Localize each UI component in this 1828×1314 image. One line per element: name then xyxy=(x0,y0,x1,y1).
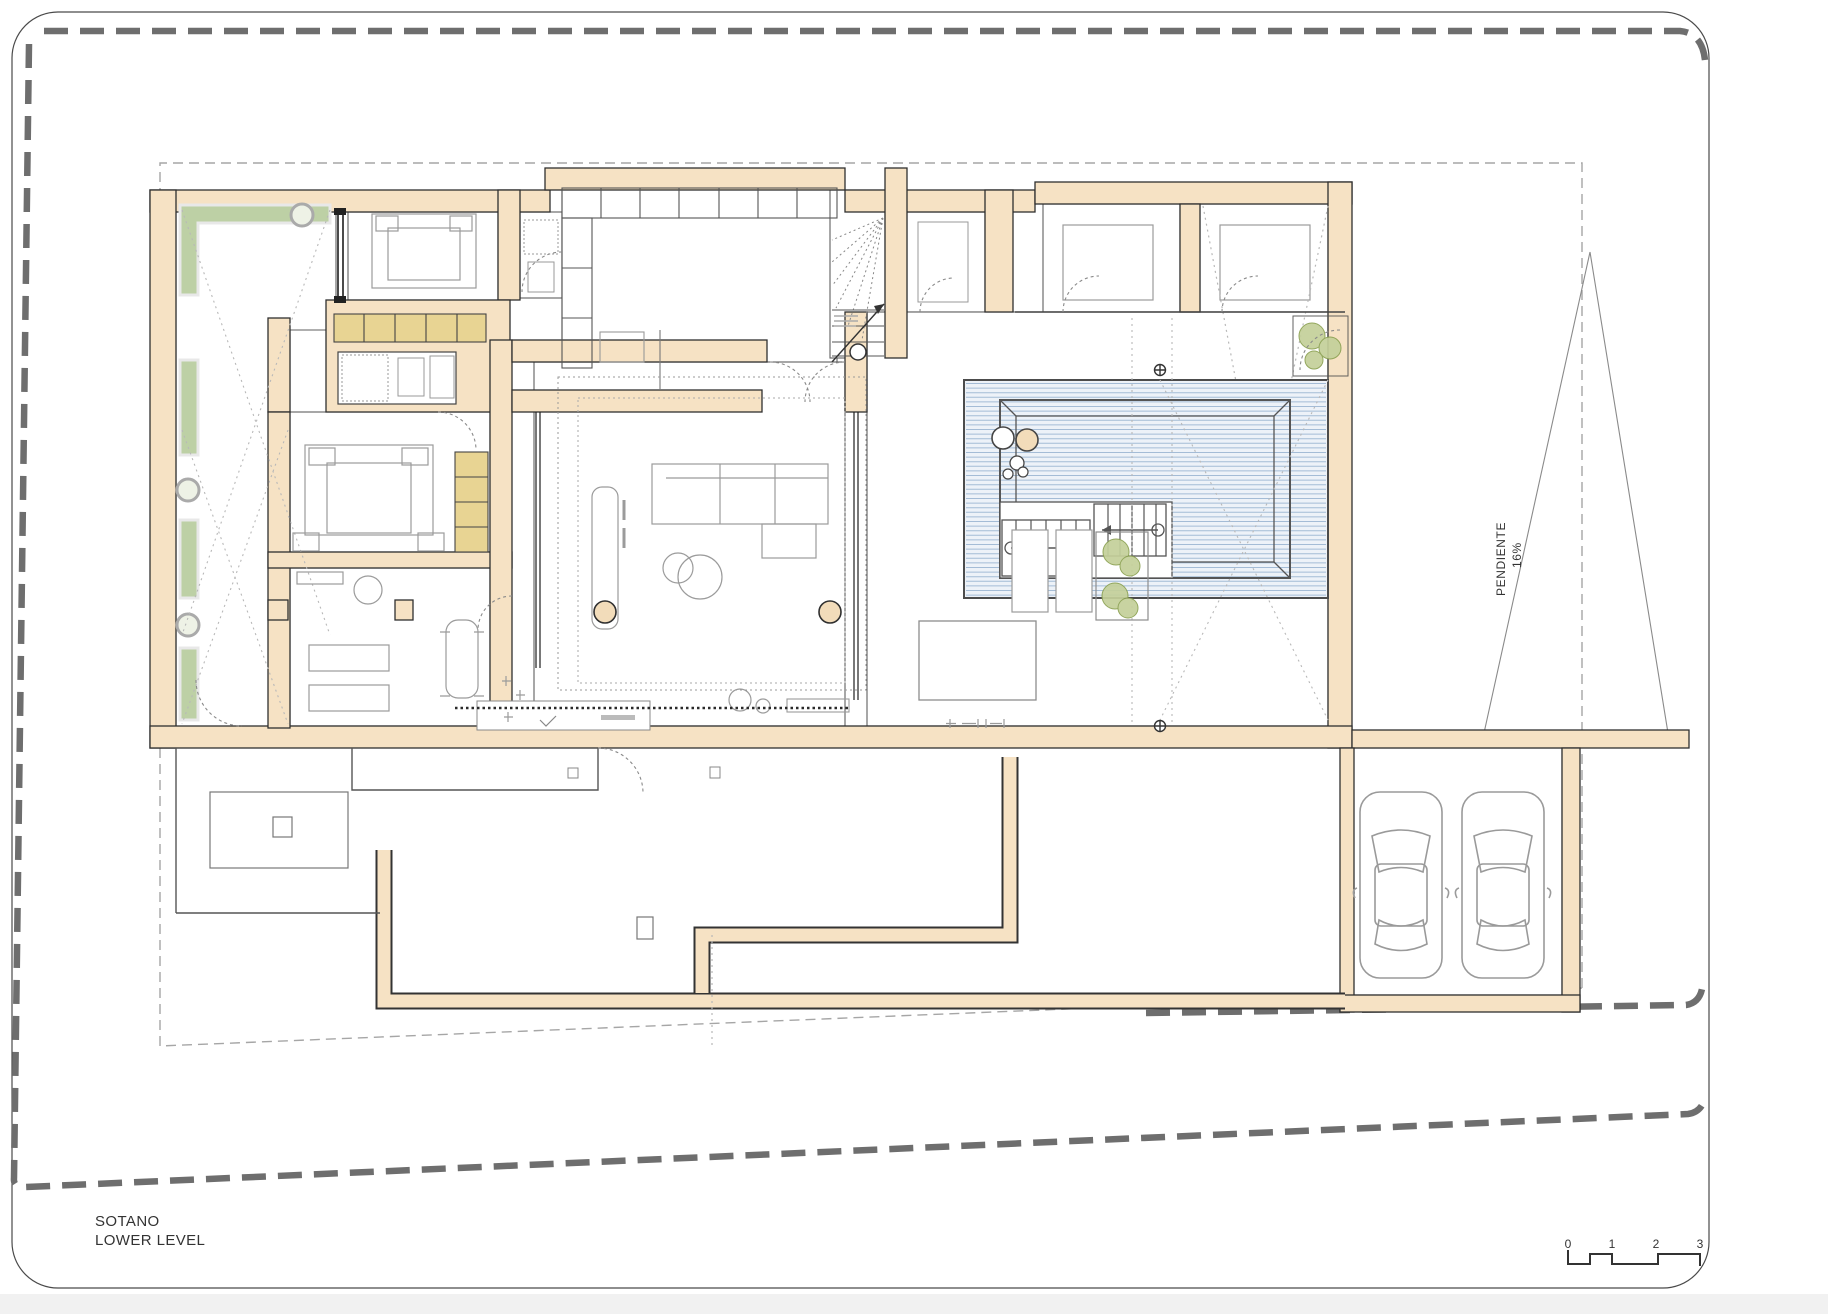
planter-west-3 xyxy=(180,648,198,720)
living-room xyxy=(534,362,845,726)
plan-canvas: PENDIENTE 16% xyxy=(0,0,1828,1314)
wall-bath-west xyxy=(268,318,290,412)
wall-storage-divider xyxy=(1180,204,1200,312)
plant-leaf xyxy=(1305,351,1323,369)
wall-gym-east xyxy=(490,340,512,728)
wall-garage-west xyxy=(1340,748,1354,1012)
closet-row-bed1 xyxy=(334,314,486,342)
wall-laundry-south xyxy=(512,390,762,412)
plant-leaf xyxy=(1120,556,1140,576)
lounger-2 xyxy=(1056,530,1092,612)
wall-north-4 xyxy=(1035,182,1352,204)
bathroom-1 xyxy=(338,352,456,404)
downlight-1 xyxy=(291,204,313,226)
downlight-2 xyxy=(177,479,199,501)
scale-tick-3: 3 xyxy=(1697,1237,1704,1251)
slope-label: PENDIENTE xyxy=(1494,522,1508,596)
wall-south xyxy=(150,726,1352,748)
threshold-bar xyxy=(601,715,635,720)
floorplan-sheet: { "drawing": { "title_primary": "SOTANO"… xyxy=(0,0,1828,1314)
wall-bed1-east xyxy=(498,190,520,300)
wall-east xyxy=(1328,182,1352,748)
garage xyxy=(1352,748,1562,995)
wall-stair-east xyxy=(885,168,907,358)
glass-cap-bottom xyxy=(334,296,346,303)
wall-patio-low xyxy=(268,412,290,728)
wall-strip-east xyxy=(1352,730,1689,748)
wall-garage-south xyxy=(1340,995,1580,1012)
utility-room xyxy=(907,212,985,312)
downlight-3 xyxy=(177,614,199,636)
wall-west xyxy=(150,190,176,748)
wardrobe-bed2 xyxy=(455,452,488,552)
scale-tick-0: 0 xyxy=(1565,1237,1572,1251)
slope-value: 16% xyxy=(1510,542,1524,568)
column-living-west xyxy=(594,601,616,623)
plant-leaf xyxy=(1118,598,1138,618)
outside-margin xyxy=(0,1294,1828,1314)
wall-utility-east xyxy=(985,190,1013,312)
wall-bed2-south xyxy=(268,552,512,568)
pool-rock-small-3 xyxy=(1018,467,1028,477)
stair-column xyxy=(850,344,866,360)
pool-rock-small-2 xyxy=(1003,469,1013,479)
bathroom-small xyxy=(520,212,562,298)
column-gym-west xyxy=(268,600,288,620)
wall-north-2 xyxy=(545,168,845,190)
scale-tick-2: 2 xyxy=(1653,1237,1660,1251)
pool-rock-tan xyxy=(1016,429,1038,451)
gym-room xyxy=(290,568,490,726)
wall-living-north xyxy=(512,340,767,362)
planter-west-2 xyxy=(180,520,198,598)
lounger-1 xyxy=(1012,530,1048,612)
glass-cap-top xyxy=(334,208,346,215)
scale-tick-1: 1 xyxy=(1609,1237,1616,1251)
plan-title-secondary: LOWER LEVEL xyxy=(95,1232,205,1249)
wall-garage-east xyxy=(1562,748,1580,1012)
plan-title-primary: SOTANO xyxy=(95,1213,160,1230)
column-gym-east xyxy=(395,600,413,620)
planter-west-1 xyxy=(180,360,198,455)
pool-rock-white xyxy=(992,427,1014,449)
column-living-east xyxy=(819,601,841,623)
closet-row xyxy=(334,314,486,342)
